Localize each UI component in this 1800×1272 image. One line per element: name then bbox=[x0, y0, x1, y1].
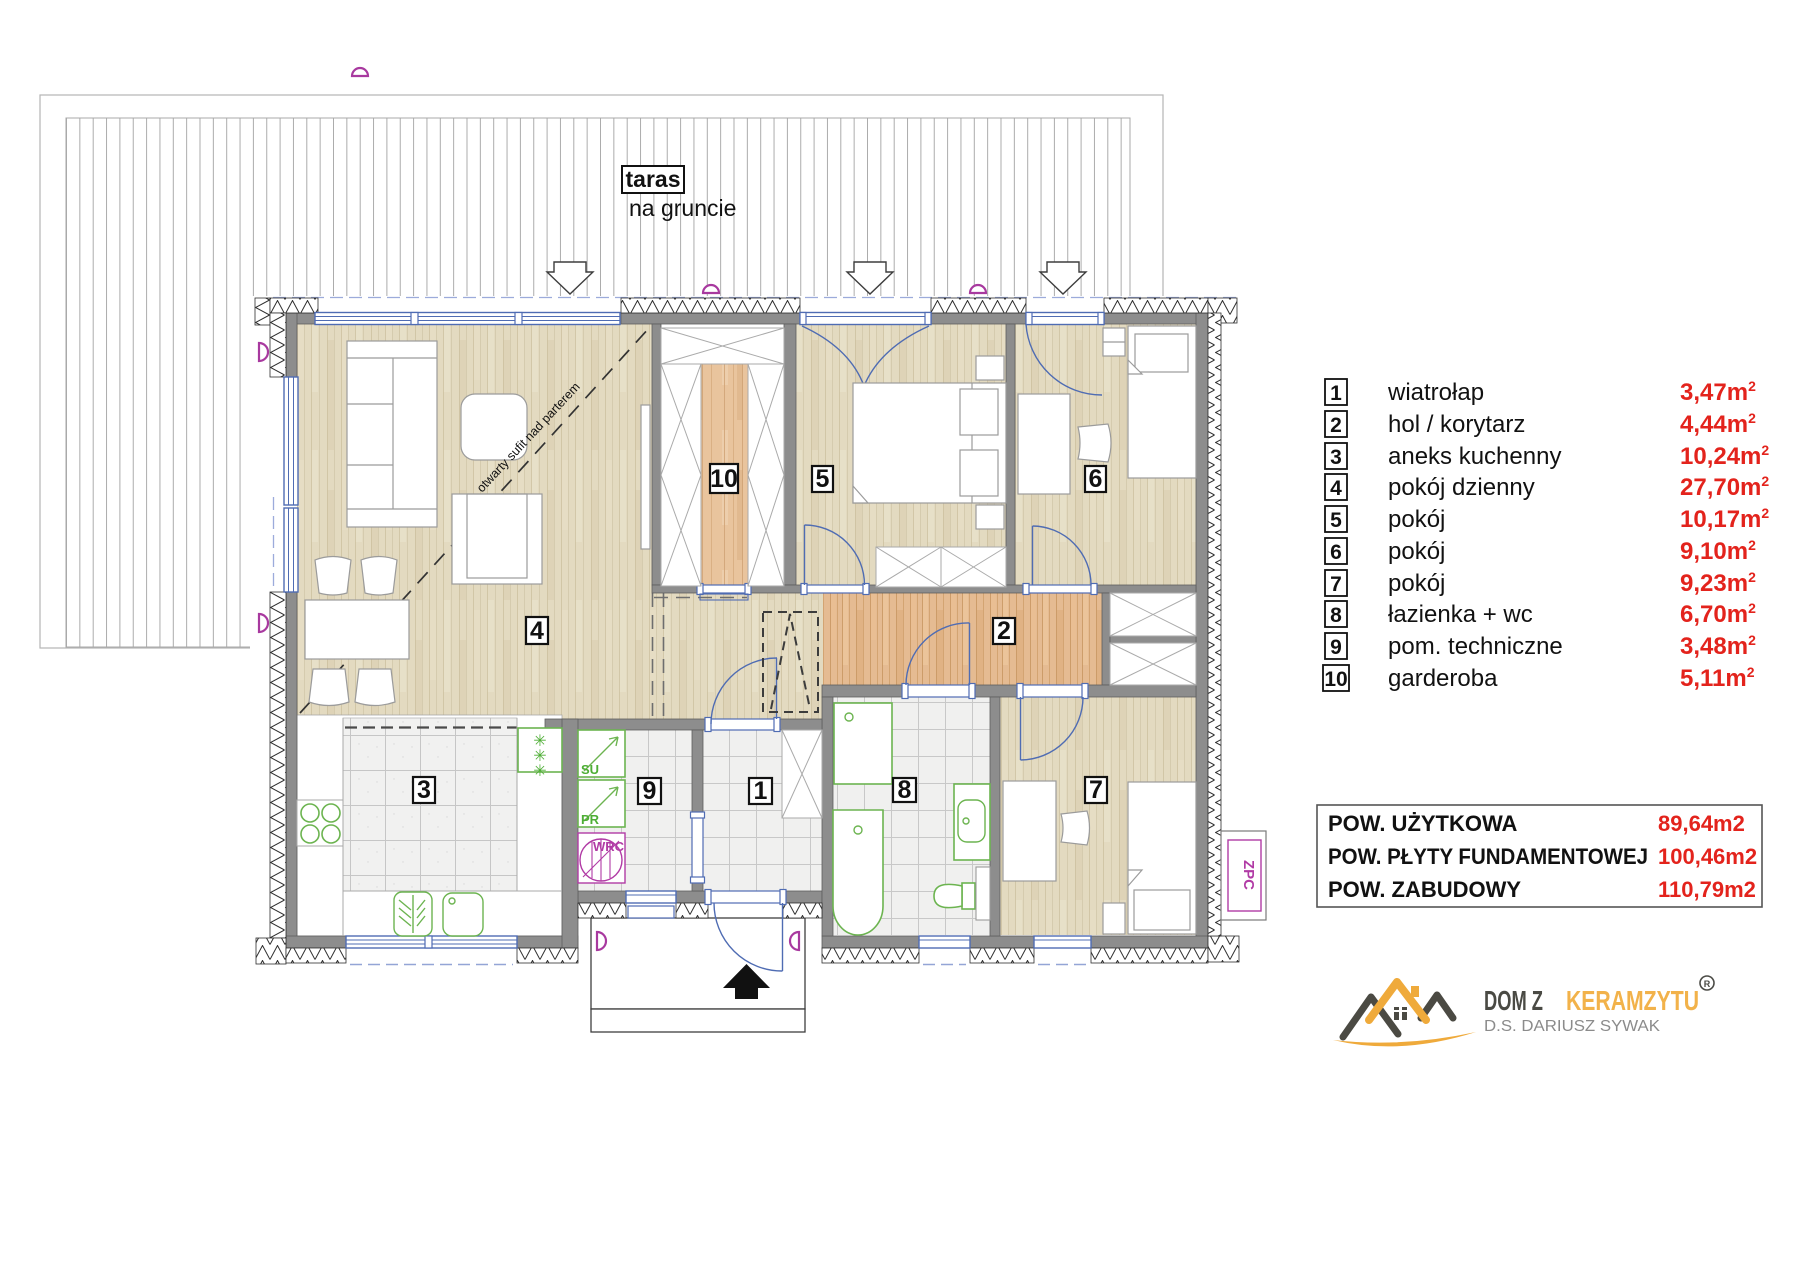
svg-text:4: 4 bbox=[530, 617, 544, 645]
svg-text:1: 1 bbox=[1330, 382, 1342, 405]
svg-text:✳: ✳ bbox=[533, 763, 546, 780]
svg-text:SU: SU bbox=[581, 762, 599, 777]
svg-text:3,47m2: 3,47m2 bbox=[1680, 378, 1756, 406]
svg-text:WRC: WRC bbox=[593, 839, 625, 854]
svg-text:na gruncie: na gruncie bbox=[629, 195, 736, 221]
svg-text:27,70m2: 27,70m2 bbox=[1680, 473, 1769, 501]
svg-text:pokój: pokój bbox=[1388, 506, 1445, 533]
svg-text:2: 2 bbox=[1330, 414, 1342, 437]
svg-text:4: 4 bbox=[1330, 477, 1342, 500]
svg-text:5,11m2: 5,11m2 bbox=[1680, 664, 1755, 692]
svg-text:89,64m2: 89,64m2 bbox=[1658, 811, 1745, 836]
svg-text:1: 1 bbox=[754, 777, 768, 805]
svg-text:pom. techniczne: pom. techniczne bbox=[1388, 633, 1563, 660]
svg-text:6: 6 bbox=[1330, 541, 1342, 564]
svg-text:9: 9 bbox=[1330, 636, 1342, 659]
svg-text:POW. ZABUDOWY: POW. ZABUDOWY bbox=[1328, 877, 1521, 902]
svg-text:9: 9 bbox=[643, 777, 657, 805]
svg-text:łazienka + wc: łazienka + wc bbox=[1388, 601, 1533, 628]
svg-text:wiatrołap: wiatrołap bbox=[1387, 379, 1484, 406]
svg-text:POW. PŁYTY FUNDAMENTOWEJ: POW. PŁYTY FUNDAMENTOWEJ bbox=[1328, 844, 1648, 869]
svg-text:6,70m2: 6,70m2 bbox=[1680, 600, 1756, 628]
svg-text:3: 3 bbox=[1330, 446, 1342, 469]
svg-text:hol / korytarz: hol / korytarz bbox=[1388, 411, 1525, 438]
svg-text:D.S. DARIUSZ SYWAK: D.S. DARIUSZ SYWAK bbox=[1484, 1018, 1660, 1035]
svg-text:KERAMZYTU: KERAMZYTU bbox=[1566, 985, 1699, 1016]
svg-text:POW. UŻYTKOWA: POW. UŻYTKOWA bbox=[1328, 811, 1518, 836]
svg-text:PR: PR bbox=[581, 812, 600, 827]
svg-text:3: 3 bbox=[417, 776, 431, 804]
svg-text:taras: taras bbox=[626, 166, 681, 192]
svg-text:aneks kuchenny: aneks kuchenny bbox=[1388, 443, 1561, 470]
svg-text:pokój dzienny: pokój dzienny bbox=[1388, 474, 1535, 501]
svg-text:10: 10 bbox=[710, 465, 738, 493]
svg-text:6: 6 bbox=[1089, 465, 1103, 493]
svg-text:pokój: pokój bbox=[1388, 570, 1445, 597]
svg-text:5: 5 bbox=[1330, 509, 1342, 532]
svg-text:10: 10 bbox=[1324, 668, 1347, 691]
svg-text:4,44m2: 4,44m2 bbox=[1680, 410, 1756, 438]
svg-text:110,79m2: 110,79m2 bbox=[1658, 877, 1756, 902]
svg-text:7: 7 bbox=[1330, 573, 1342, 596]
svg-text:100,46m2: 100,46m2 bbox=[1658, 844, 1757, 869]
svg-text:10,17m2: 10,17m2 bbox=[1680, 505, 1769, 533]
svg-text:pokój: pokój bbox=[1388, 538, 1445, 565]
svg-text:7: 7 bbox=[1089, 776, 1103, 804]
svg-text:9,23m2: 9,23m2 bbox=[1680, 569, 1756, 597]
svg-text:2: 2 bbox=[997, 617, 1011, 645]
svg-text:8: 8 bbox=[1330, 604, 1342, 627]
svg-text:garderoba: garderoba bbox=[1388, 665, 1498, 692]
svg-text:9,10m2: 9,10m2 bbox=[1680, 537, 1756, 565]
svg-text:5: 5 bbox=[816, 465, 830, 493]
svg-text:3,48m2: 3,48m2 bbox=[1680, 632, 1756, 660]
svg-text:DOM Z: DOM Z bbox=[1484, 985, 1543, 1016]
svg-text:10,24m2: 10,24m2 bbox=[1680, 442, 1769, 470]
svg-text:ZPC: ZPC bbox=[1240, 860, 1257, 890]
svg-text:8: 8 bbox=[898, 776, 912, 804]
svg-text:R: R bbox=[1704, 979, 1711, 989]
